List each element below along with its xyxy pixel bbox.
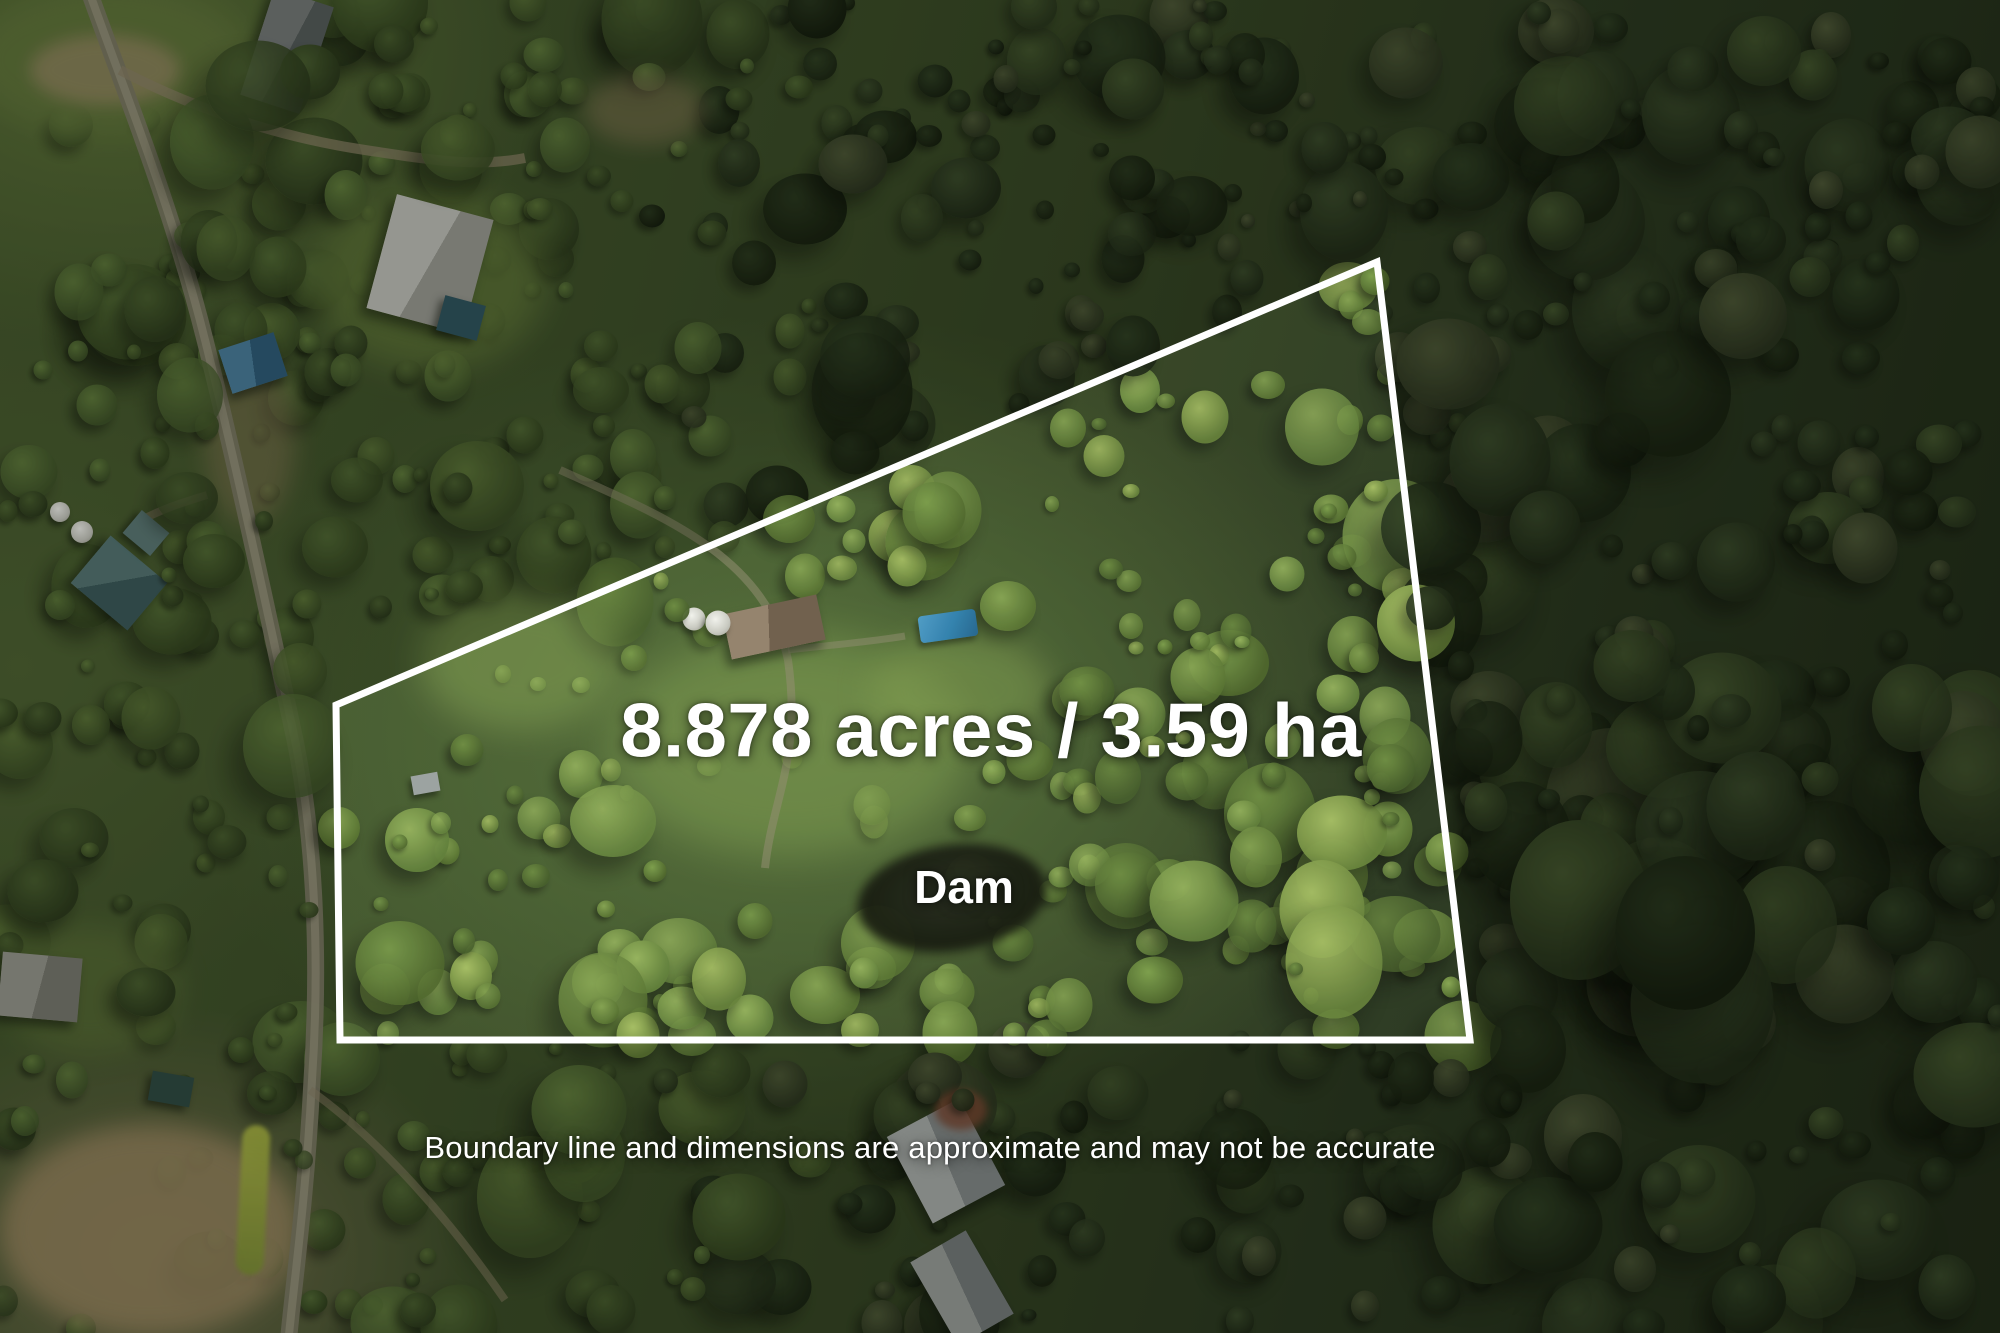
aerial-photograph: 8.878 acres / 3.59 ha Dam Boundary line …	[0, 0, 2000, 1333]
property-boundary-line	[336, 262, 1470, 1040]
dam-label: Dam	[914, 860, 1014, 914]
disclaimer-text: Boundary line and dimensions are approxi…	[424, 1130, 1435, 1166]
area-label: 8.878 acres / 3.59 ha	[620, 688, 1362, 775]
